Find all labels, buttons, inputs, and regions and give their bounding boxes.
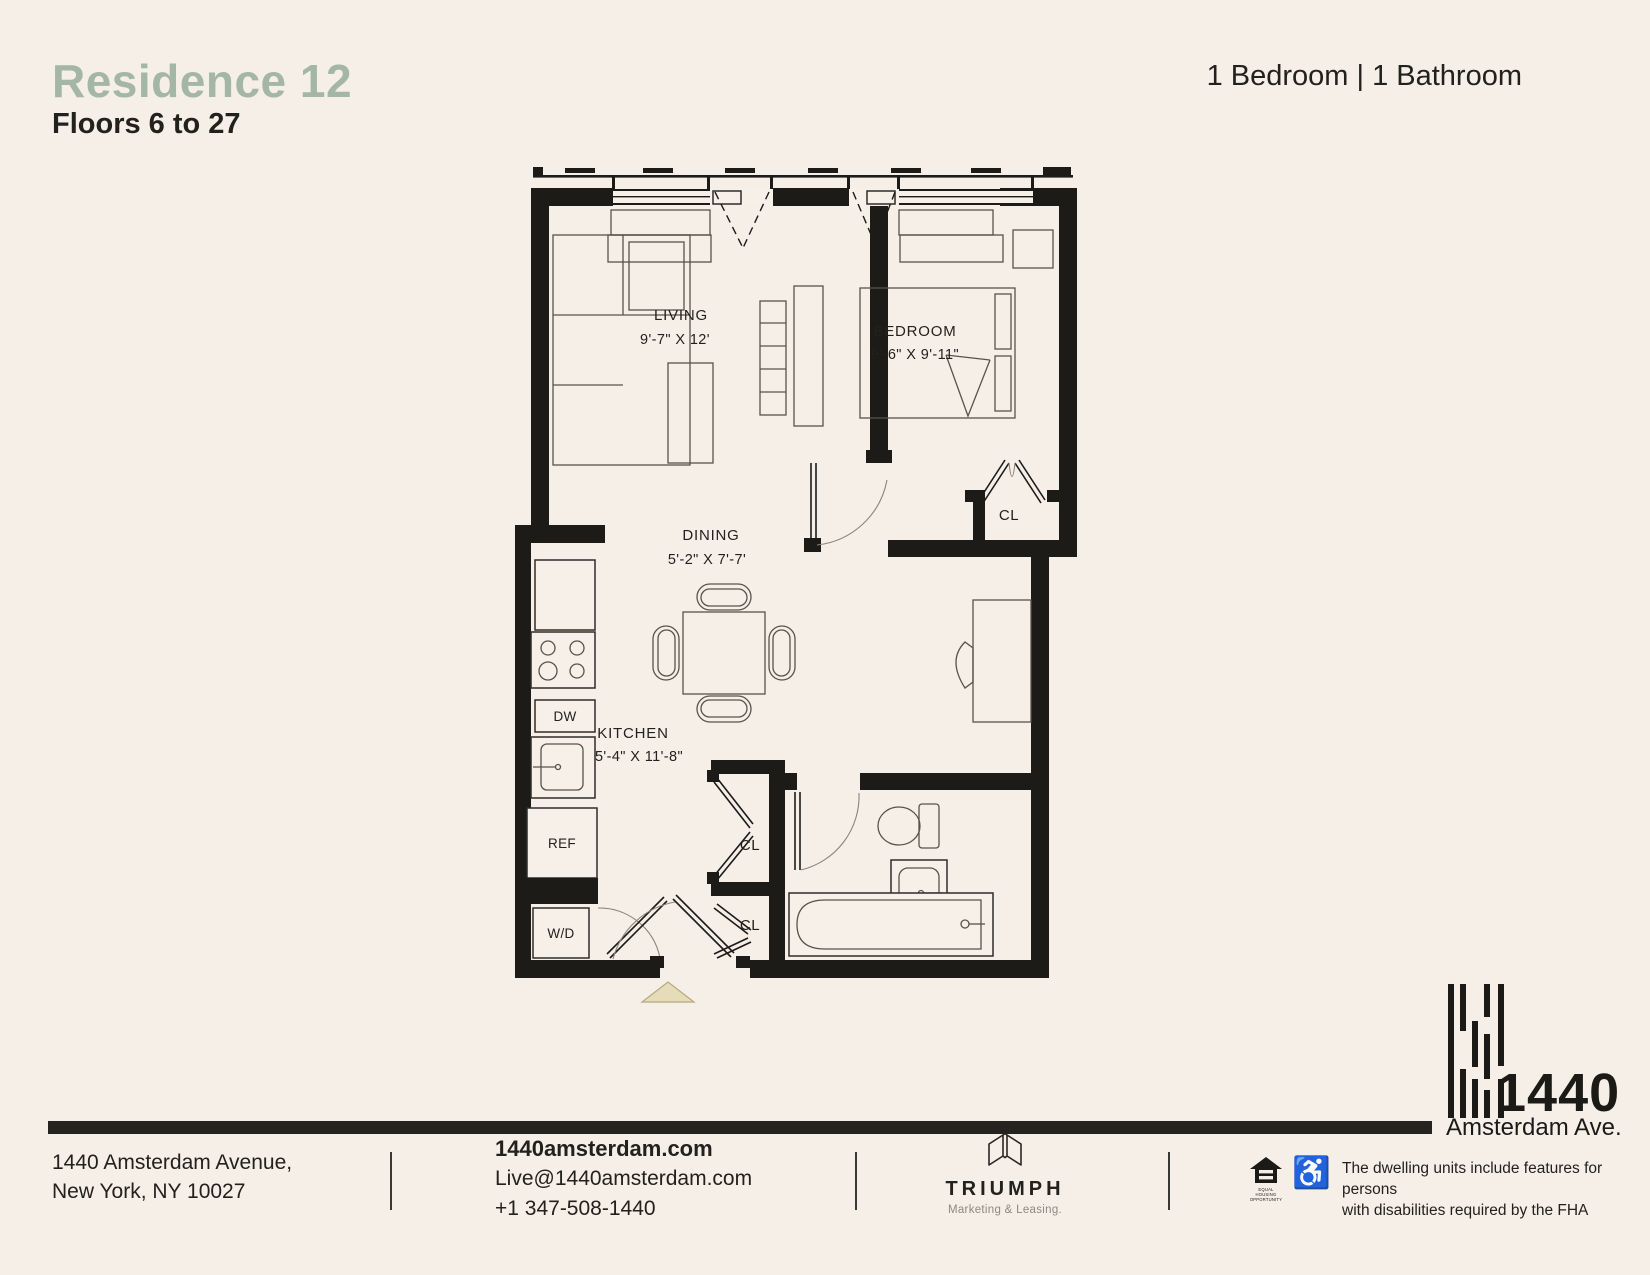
- dresser-bedroom: [900, 235, 1003, 262]
- page-title: Residence 12: [52, 54, 352, 108]
- hall-closet-2-label: CL: [740, 917, 760, 934]
- shelf-unit: [760, 286, 823, 426]
- address-line1: 1440 Amsterdam Avenue,: [52, 1148, 292, 1177]
- stove: [531, 632, 595, 688]
- footer-separator-2: [855, 1152, 857, 1210]
- nightstand: [1013, 230, 1053, 268]
- living-dims: 9'-7" X 12': [640, 332, 710, 348]
- terrace-door-living: [710, 189, 773, 248]
- equal-housing-icon: EQUAL HOUSING OPPORTUNITY: [1248, 1156, 1284, 1202]
- fha-note: The dwelling units include features for …: [1342, 1158, 1650, 1221]
- bedroom-closet-label: CL: [999, 507, 1019, 524]
- footer-divider-bar: [48, 1121, 1432, 1134]
- kitchen-dims: 5'-4" X 11'-8": [595, 749, 683, 765]
- bathroom-walls: [785, 773, 1031, 790]
- living-window: [613, 189, 710, 205]
- balcony-edge: [533, 167, 1073, 190]
- floor-plan: CL DW REF W: [503, 160, 1083, 1010]
- bedroom-dims: 9'-6" X 9'-11": [871, 347, 959, 363]
- agency-name: TRIUMPH: [925, 1178, 1085, 1201]
- washer-dryer-label: W/D: [547, 926, 574, 941]
- agency-tagline: Marketing & Leasing.: [925, 1204, 1085, 1216]
- bedroom-label: BEDROOM: [873, 323, 956, 340]
- bedroom-window: [899, 189, 1033, 205]
- address-line2: New York, NY 10027: [52, 1177, 292, 1206]
- divider-wall: [804, 206, 892, 552]
- bathtub: [789, 893, 993, 956]
- kitchen-wall-block: [515, 878, 598, 904]
- bedroom-closet: [965, 460, 1061, 542]
- kitchen-sink: [531, 737, 595, 798]
- ptac-living: [611, 210, 710, 235]
- kitchen-label: KITCHEN: [597, 725, 668, 742]
- living-label: LIVING: [654, 307, 708, 324]
- bedroom-door: [811, 463, 887, 545]
- refrigerator-label: REF: [548, 836, 576, 851]
- triumph-logo-icon: [982, 1132, 1028, 1174]
- dining-label: DINING: [682, 527, 739, 544]
- sofa-sectional: [553, 235, 690, 465]
- desk: [956, 600, 1031, 722]
- fha-icons: EQUAL HOUSING OPPORTUNITY ♿: [1248, 1156, 1331, 1202]
- phone-link[interactable]: +1 347-508-1440: [495, 1194, 752, 1224]
- footer-separator-1: [390, 1152, 392, 1210]
- address-block: 1440 Amsterdam Avenue, New York, NY 1002…: [52, 1148, 292, 1206]
- entry-arrow: [642, 982, 694, 1002]
- wheelchair-icon: ♿: [1292, 1156, 1331, 1190]
- dining-table: [653, 584, 795, 722]
- equal-housing-caption: EQUAL HOUSING OPPORTUNITY: [1248, 1187, 1284, 1202]
- dishwasher-label: DW: [553, 709, 576, 724]
- unit-info: 1 Bedroom | 1 Bathroom: [1207, 60, 1522, 93]
- ptac-bedroom: [899, 210, 993, 235]
- entry-door: [607, 895, 750, 968]
- bathroom-door: [795, 792, 859, 870]
- fha-line1: The dwelling units include features for …: [1342, 1158, 1650, 1200]
- email-link[interactable]: Live@1440amsterdam.com: [495, 1164, 752, 1194]
- website-link[interactable]: 1440amsterdam.com: [495, 1134, 752, 1164]
- footer-separator-3: [1168, 1152, 1170, 1210]
- hall-closet-1: [707, 760, 785, 896]
- fha-line2: with disabilities required by the FHA: [1342, 1200, 1650, 1221]
- toilet: [878, 804, 939, 848]
- floors-subtitle: Floors 6 to 27: [52, 108, 241, 141]
- logo-street: Amsterdam Ave.: [1446, 1114, 1622, 1142]
- kitchen-counter: [535, 560, 595, 630]
- dining-dims: 5'-2" X 7'-7': [668, 552, 746, 568]
- hall-closet-1-label: CL: [740, 837, 760, 854]
- contact-block: 1440amsterdam.com Live@1440amsterdam.com…: [495, 1134, 752, 1224]
- agency-block: TRIUMPH Marketing & Leasing.: [925, 1132, 1085, 1216]
- exterior-walls: [515, 188, 1077, 978]
